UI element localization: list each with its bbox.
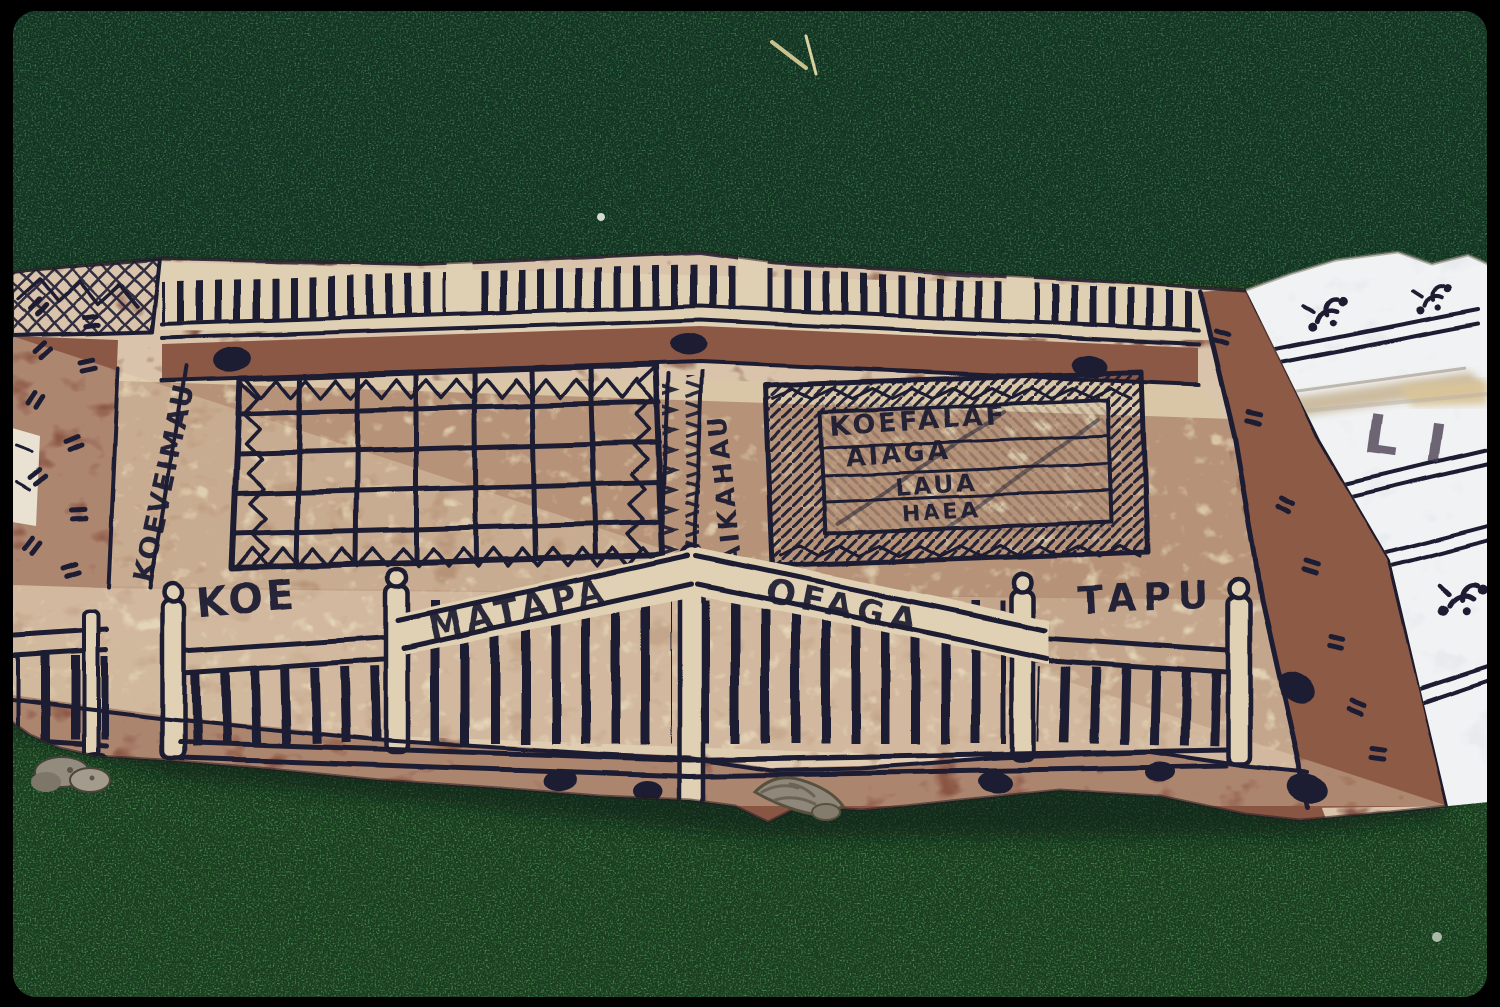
inscription-plaque-panel: KOEFALAF AIAGA LAUA HAEA — [765, 372, 1148, 566]
white-speck — [597, 213, 605, 221]
torn-edge-patch — [12, 428, 40, 526]
gate-word-tapu: TAPU — [1076, 572, 1217, 623]
white-speck — [1432, 932, 1442, 942]
gate-word-koe: KOE — [195, 571, 298, 625]
tapa-cloth-brown-section: KOEVEIMAU — [0, 240, 1470, 840]
plaque-line-3: LAUA — [894, 468, 978, 502]
photo-tapa-cloth-on-grass: KOEVEIMAU — [0, 0, 1500, 1007]
